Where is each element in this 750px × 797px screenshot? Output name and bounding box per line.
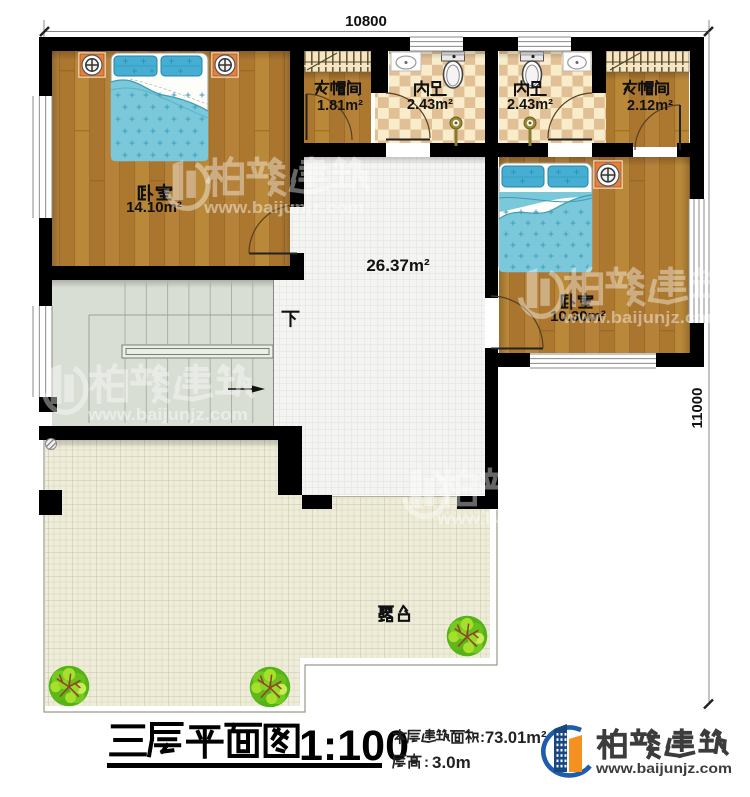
svg-text:2.43m²: 2.43m² [507,97,553,113]
svg-text::: : [424,754,429,771]
svg-text:2.43m²: 2.43m² [407,97,453,113]
svg-text:2.12m²: 2.12m² [627,98,673,114]
svg-text:73.01m²: 73.01m² [485,729,547,747]
svg-text:www.baijunjz.com: www.baijunjz.com [87,405,248,424]
svg-text:10800: 10800 [345,13,387,30]
svg-text:26.37m²: 26.37m² [366,256,430,275]
svg-text:1.81m²: 1.81m² [317,98,363,114]
svg-text:www.baijunjz.com: www.baijunjz.com [595,760,732,776]
svg-text:www.baijunjz.com: www.baijunjz.com [436,509,597,528]
svg-text:www.baijunjz.com: www.baijunjz.com [562,308,723,327]
svg-text:www.baijunjz.com: www.baijunjz.com [203,198,364,217]
svg-text:1:100: 1:100 [299,722,409,770]
svg-text:11000: 11000 [689,388,706,429]
svg-text:3.0m: 3.0m [432,753,471,772]
